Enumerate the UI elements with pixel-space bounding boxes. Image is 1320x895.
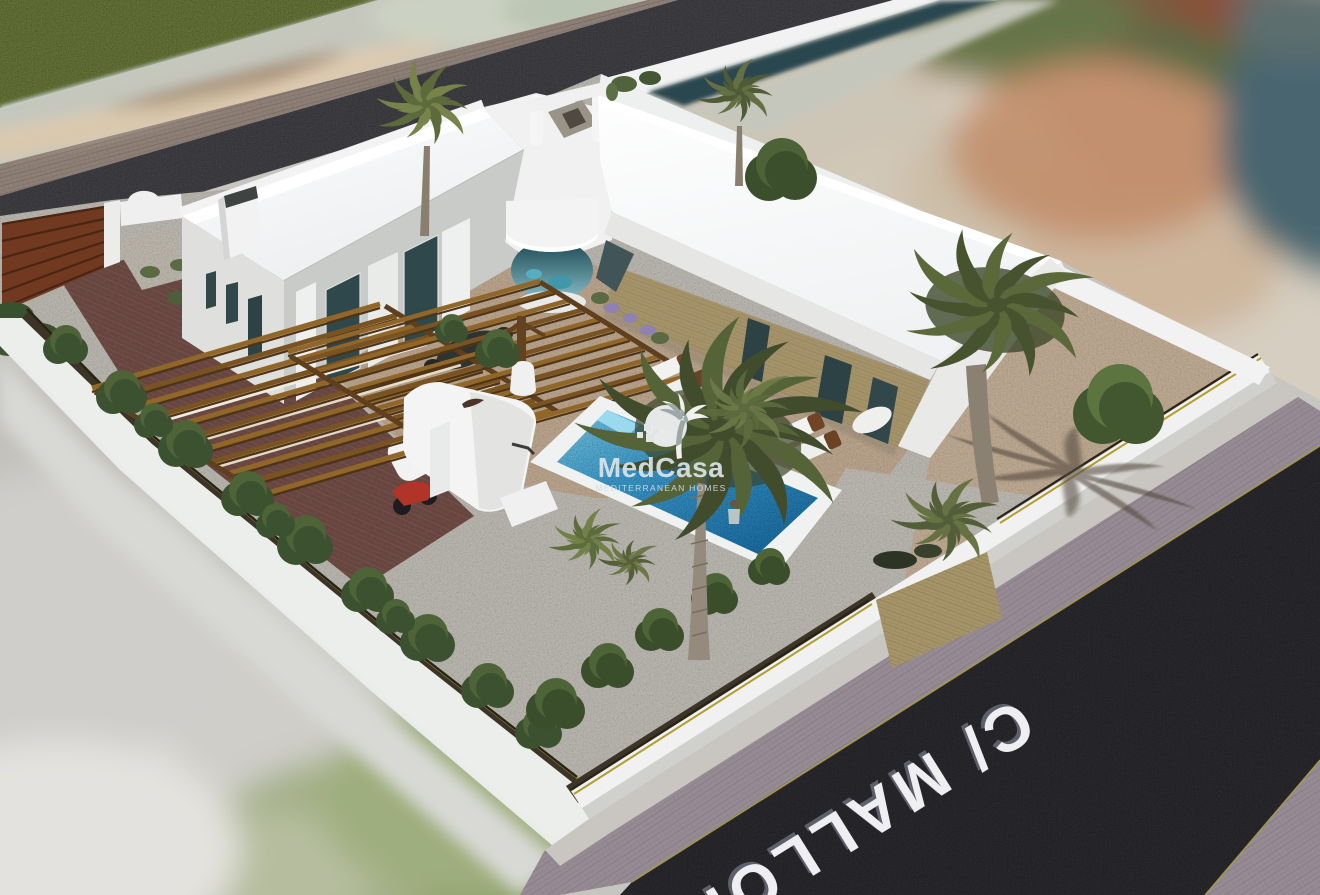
- svg-text:MedCasa: MedCasa: [598, 452, 724, 483]
- svg-text:MEDITERRANEAN HOMES: MEDITERRANEAN HOMES: [595, 483, 726, 493]
